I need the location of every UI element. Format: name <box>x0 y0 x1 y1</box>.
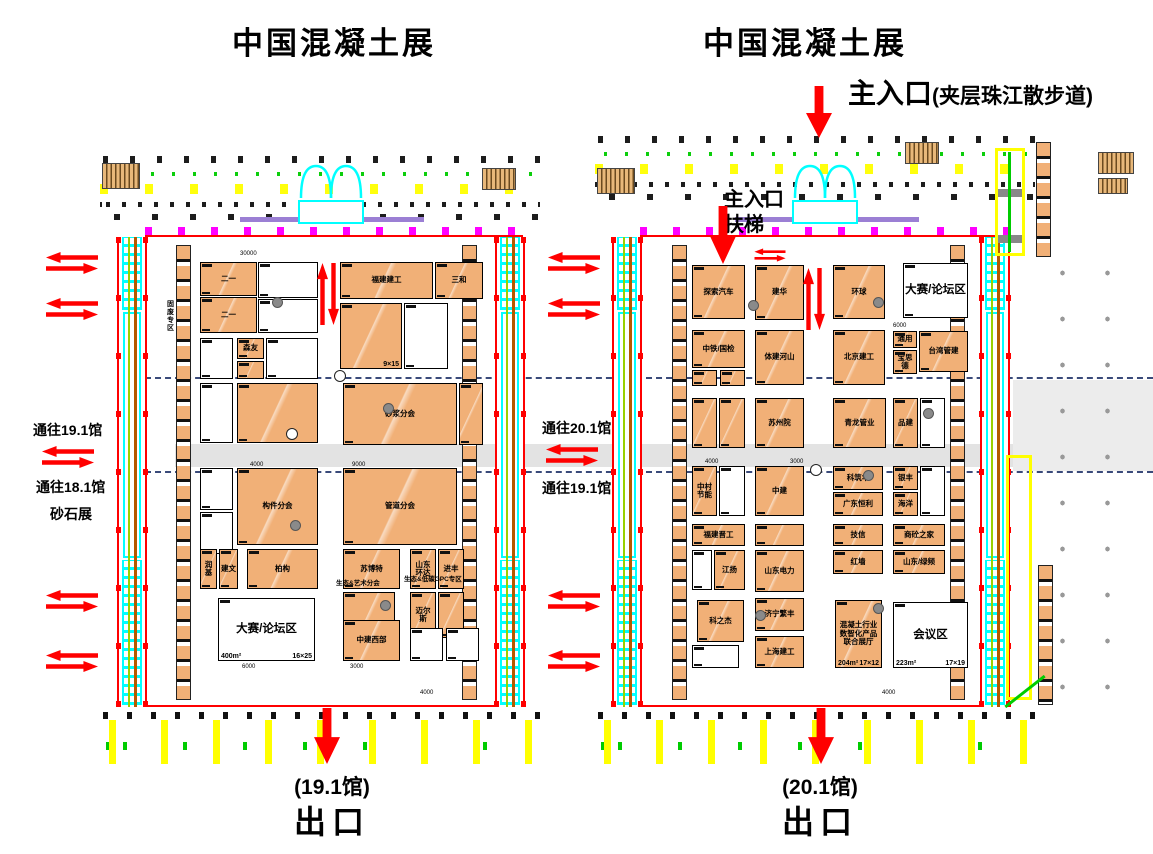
booth: 9×15 <box>340 303 402 369</box>
booth: 会议区223m²17×19 <box>893 602 968 668</box>
booth-name: 广东恒利 <box>835 500 881 509</box>
booth <box>200 468 233 510</box>
aisle-node <box>286 428 298 440</box>
booth-name: 大赛/论坛区 <box>905 284 966 297</box>
booth <box>404 303 448 369</box>
booth <box>692 398 717 448</box>
booth <box>446 628 479 661</box>
booth: 江扬 <box>714 550 745 590</box>
swap-arrow-icon <box>548 298 600 320</box>
swap-arrow-icon <box>754 248 785 261</box>
swap-arrow-icon <box>46 298 98 320</box>
booth-name: 柏构 <box>249 565 316 574</box>
booth-dims: 17×19 <box>945 660 965 667</box>
booth-name: 通用 <box>895 335 915 344</box>
booth-name: 宝思德 <box>895 354 915 371</box>
vertical-swap-arrow-icon <box>803 268 825 330</box>
booth-dims: 16×25 <box>292 653 312 660</box>
dimension-text: 3000 <box>790 459 803 465</box>
booth <box>719 398 745 448</box>
swap-arrow-icon <box>46 650 98 672</box>
vertical-swap-arrow-icon <box>317 263 339 325</box>
booth-name: 科筑华 <box>835 474 881 483</box>
booth-area: 400m² <box>221 653 241 660</box>
booth-name: 森友 <box>239 344 262 353</box>
booth-name: 体建河山 <box>757 353 802 362</box>
booth-name: 环球 <box>835 288 883 297</box>
booth: 宝思德 <box>893 350 917 374</box>
booth: 体建河山 <box>755 330 804 385</box>
aisle-node <box>334 370 346 382</box>
booth-name: 青龙管业 <box>835 419 884 428</box>
booth-name: 混凝土行业数智化产品联合展厅 <box>837 621 880 647</box>
booth-name: 会议区 <box>895 629 966 642</box>
booth: 山东电力 <box>755 550 804 592</box>
down-arrow-icon <box>806 86 832 138</box>
booth-name: 品建 <box>895 419 916 428</box>
aisle-node <box>810 464 822 476</box>
booth-name: 福建晋工 <box>694 531 743 540</box>
booth: 建华 <box>755 265 804 320</box>
booth <box>719 466 745 516</box>
booth: 福建建工 <box>340 262 433 299</box>
zone-label: 固废专区 <box>166 300 174 332</box>
booth: 大赛/论坛区400m²16×25 <box>218 598 315 661</box>
booth-name: 迈尔斯 <box>412 607 434 624</box>
booth-name: 山东/绿频 <box>895 558 943 567</box>
booth-name: 山东电力 <box>757 567 802 576</box>
booth: 柏构 <box>247 549 318 589</box>
booth-name: 大赛/论坛区 <box>220 623 313 636</box>
equipment-dot <box>873 603 884 614</box>
booth-name: 中铁/国检 <box>694 345 743 354</box>
equipment-dot <box>755 610 766 621</box>
booth-name: 二一 <box>202 311 255 320</box>
booth-name: 海洋 <box>895 500 916 509</box>
booth-name: 科之杰 <box>699 617 742 626</box>
booth <box>920 466 945 516</box>
booth-name: 山东环达 <box>412 561 434 578</box>
booth <box>237 383 318 443</box>
booth-name: 建华 <box>757 288 802 297</box>
booth: 森友 <box>237 338 264 359</box>
dimension-text: 4000 <box>705 459 718 465</box>
booth <box>237 361 264 379</box>
booth: 福建晋工 <box>692 524 745 546</box>
booth: 构件分会 <box>237 468 318 545</box>
booth: 探索汽车 <box>692 265 745 319</box>
swap-arrow-icon <box>46 590 98 612</box>
swap-arrow-icon <box>546 444 598 466</box>
booth: 大赛/论坛区 <box>903 263 968 318</box>
booth: 砂浆分会 <box>343 383 457 445</box>
booth: 台湾管建 <box>919 331 968 372</box>
booth-name: 中建 <box>757 487 802 496</box>
booth-area: 204m² <box>838 660 858 667</box>
booth: 科之杰 <box>697 600 744 642</box>
dimension-text: 6000 <box>893 323 906 329</box>
booth-name: 构件分会 <box>239 502 316 511</box>
booth: 海洋 <box>893 492 918 516</box>
booth-name: 三和 <box>437 276 481 285</box>
equipment-dot <box>923 408 934 419</box>
booth <box>200 512 233 554</box>
booth: 苏州院 <box>755 398 804 448</box>
booth <box>459 383 483 445</box>
dimension-text: 30000 <box>240 251 257 257</box>
down-arrow-icon <box>808 708 834 764</box>
booth: 品建 <box>893 398 918 448</box>
map-layer: 二一二一福建建工三和9×15森友砂浆分会构件分会管道分会润基建文柏构苏博特山东环… <box>0 0 1153 854</box>
dimension-text: 3000 <box>350 664 363 670</box>
booth-name: 台湾管建 <box>921 347 966 356</box>
booth: 润基 <box>200 549 217 589</box>
down-arrow-icon <box>710 206 736 264</box>
booth-name: 上海建工 <box>757 648 802 657</box>
booth-name: 北京建工 <box>835 353 883 362</box>
dimension-text: 9000 <box>352 462 365 468</box>
booth-name: 福建建工 <box>342 276 431 285</box>
booth-name: 苏博特 <box>345 565 398 574</box>
swap-arrow-icon <box>46 252 98 274</box>
equipment-dot <box>272 297 283 308</box>
dimension-text: 4000 <box>882 690 895 696</box>
swap-arrow-icon <box>548 590 600 612</box>
equipment-dot <box>748 300 759 311</box>
booth <box>266 338 318 379</box>
booth <box>692 550 712 590</box>
booth: 建文 <box>219 549 238 589</box>
booth <box>258 299 318 333</box>
booth-name: 探索汽车 <box>694 288 743 297</box>
booth: 北京建工 <box>833 330 885 385</box>
booth <box>410 628 443 661</box>
booth: 二一 <box>200 262 257 296</box>
booth: 通用 <box>893 331 917 348</box>
booth <box>755 524 804 546</box>
booth-name: 江扬 <box>716 566 743 575</box>
booth: 银丰 <box>893 466 918 490</box>
booth-name: 红墙 <box>835 558 881 567</box>
booth-name: 砂浆分会 <box>345 410 455 419</box>
booth <box>258 262 318 298</box>
booth: 中建西部 <box>343 620 400 661</box>
booth-name: 商砼之家 <box>895 531 943 540</box>
booth-name: 苏州院 <box>757 419 802 428</box>
swap-arrow-icon <box>548 650 600 672</box>
booth: 三和 <box>435 262 483 299</box>
booth-name: 进丰 <box>440 565 462 574</box>
booth: 红墙 <box>833 550 883 574</box>
booth-name: 技信 <box>835 531 881 540</box>
booth: 中铁/国检 <box>692 330 745 368</box>
booth: 青龙管业 <box>833 398 886 448</box>
booth <box>200 338 233 379</box>
booth-name: 中村节能 <box>694 483 715 500</box>
booth: 管道分会 <box>343 468 457 545</box>
booth-name: 建文 <box>221 565 236 574</box>
booth-name: 管道分会 <box>345 502 455 511</box>
dimension-text: 4000 <box>250 462 263 468</box>
booth-dims: 9×15 <box>383 361 399 368</box>
booth: 环球 <box>833 265 885 319</box>
booth-name: 润基 <box>202 561 215 578</box>
zone-label: 生态&艺术分会 <box>336 580 408 588</box>
booth: 商砼之家 <box>893 524 945 546</box>
swap-arrow-icon <box>42 446 94 468</box>
booth-name: 中建西部 <box>345 636 398 645</box>
booth <box>720 370 745 386</box>
down-arrow-icon <box>314 708 340 764</box>
dimension-text: 4000 <box>420 690 433 696</box>
booth <box>920 398 945 448</box>
zone-label: 生态&低碳GPC专区 <box>404 576 480 584</box>
equipment-dot <box>863 470 874 481</box>
equipment-dot <box>383 403 394 414</box>
booth-area: 223m² <box>896 660 916 667</box>
floorplan-canvas: 中国混凝土展 中国混凝土展 主入口(夹层珠江散步道) 主入口 扶梯 通往19.1… <box>0 0 1153 854</box>
booth-name: 二一 <box>202 275 255 284</box>
booth: 中建 <box>755 466 804 516</box>
booth-name: 银丰 <box>895 474 916 483</box>
booth: 上海建工 <box>755 636 804 668</box>
dimension-text: 6000 <box>242 664 255 670</box>
booth: 科筑华 <box>833 466 883 490</box>
booth <box>692 370 717 386</box>
booth-dims: 17×12 <box>859 660 879 667</box>
booth: 中村节能 <box>692 466 717 516</box>
equipment-dot <box>873 297 884 308</box>
booth: 山东/绿频 <box>893 550 945 574</box>
booth: 技信 <box>833 524 883 546</box>
booth: 二一 <box>200 297 257 333</box>
booth <box>200 383 233 443</box>
booth <box>692 645 739 668</box>
equipment-dot <box>290 520 301 531</box>
swap-arrow-icon <box>548 252 600 274</box>
equipment-dot <box>380 600 391 611</box>
booth: 广东恒利 <box>833 492 883 516</box>
